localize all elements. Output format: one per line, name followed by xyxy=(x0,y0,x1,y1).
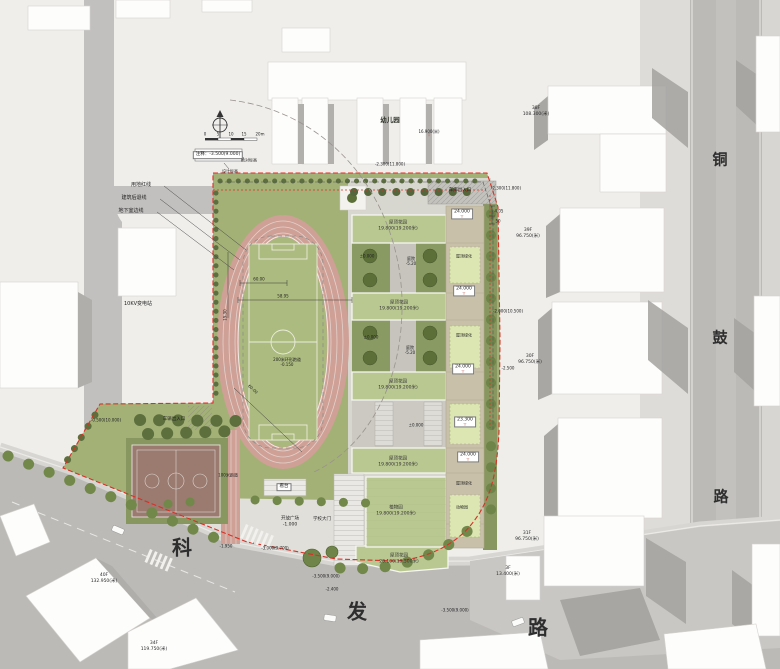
dim-50: 50 xyxy=(495,219,500,224)
label-basement-line: 地下室边线 xyxy=(118,208,143,214)
dim-4-05: 4.05 xyxy=(495,209,504,214)
street-tonggu-char-0: 铜 xyxy=(712,151,727,170)
scale-tick-1: 5 xyxy=(217,132,220,137)
green-roof-label-1: 屋顶绿化 xyxy=(456,333,472,338)
street-tonggu-char-2: 路 xyxy=(713,488,728,507)
plan-graphics xyxy=(0,0,780,669)
plaza-label: 开放广场-1.000 xyxy=(281,516,299,527)
tower-label-6: 34F119.750(米) xyxy=(141,641,168,653)
roof-label-5: 屋顶花园20.100(19.500米) xyxy=(379,553,419,564)
site-plan-drawing: 注释：-3.500(9.000) 绝对标高 设计标高 0 5 10 15 20m… xyxy=(0,0,780,669)
zero-elev-1: ±0.000 xyxy=(364,335,379,340)
scale-tick-0: 0 xyxy=(204,132,207,137)
label-garage-entrance: 车库出入口 xyxy=(449,188,472,194)
roof-label-1: 屋顶花园19.800(19.200米) xyxy=(379,300,419,311)
elev-east-b: -2.500 xyxy=(502,366,515,371)
tower-label-1: 39F96.750(米) xyxy=(516,228,540,240)
north-arrow xyxy=(212,110,228,138)
green-roof-label-3: 动物园 xyxy=(456,505,468,510)
substation-building xyxy=(118,228,176,296)
sprint-track-label: 100米跑道 xyxy=(218,473,238,478)
label-substation: 10KV变电站 xyxy=(124,301,152,307)
label-red-line: 用地红线 xyxy=(131,182,151,188)
elev-top-a: -2.300(11.800) xyxy=(375,162,405,167)
label-vehicle-entrance: 车辆出入口 xyxy=(163,417,186,423)
tower-label-3: 31F96.750(米) xyxy=(515,531,539,543)
roof-label-3: 屋顶花园19.800(19.200米) xyxy=(378,456,418,467)
dim-58-95: 58.95 xyxy=(277,294,288,299)
street-kefa-char-0: 科 xyxy=(172,536,192,561)
street-kefa-char-2: 路 xyxy=(528,616,548,641)
legend-design-elevation: 设计标高 xyxy=(222,169,238,174)
elev-west: -0.500(10.000) xyxy=(91,418,121,423)
elev-road-a: -1.950 xyxy=(220,544,233,549)
dim-15-30: 15.30 xyxy=(223,309,228,320)
roof-label-2: 屋顶花园19.800(19.200米) xyxy=(378,379,418,390)
legend-note: 注释：-3.500(9.000) xyxy=(193,151,243,159)
courtyard-label-1: 庭院-5.20 xyxy=(406,256,416,266)
street-kefa-char-1: 发 xyxy=(347,600,367,625)
scale-bar xyxy=(205,138,257,140)
tower-label-4: 3F13.400(米) xyxy=(496,566,520,578)
kindergarten-building xyxy=(268,62,466,164)
roof-label-0: 屋顶花园19.800(19.200米) xyxy=(378,220,418,231)
level-box-3: 23.300▽ xyxy=(454,416,476,427)
label-kindergarten: 幼儿园 xyxy=(380,116,400,124)
elev-top-b: -2.300(11.800) xyxy=(491,186,521,191)
level-box-2: 24.000▽ xyxy=(452,363,474,374)
tower-label-2: 30F96.750(米) xyxy=(518,354,542,366)
elev-road-c: -3.500(9.000) xyxy=(312,574,339,579)
soccer-field xyxy=(249,244,317,440)
elev-road-b: -3.000(9.700) xyxy=(261,546,288,551)
tower-label-5: 40F132.950(米) xyxy=(91,573,118,585)
label-kindergarten-height: 16.900(米)▽ xyxy=(418,129,439,138)
scale-tick-4: 20m xyxy=(256,132,265,137)
elev-east-a: -2.000(10.500) xyxy=(493,309,523,314)
dim-60-00-a: 60.00 xyxy=(253,277,264,282)
scale-tick-2: 10 xyxy=(228,132,233,137)
zero-elev-0: ±0.000 xyxy=(360,254,375,259)
basketball-court xyxy=(126,438,228,524)
level-box-0: 24.000▽ xyxy=(451,208,473,219)
green-roof-label-2: 屋顶绿化 xyxy=(456,481,472,486)
level-box-1: 24.000▽ xyxy=(453,285,475,296)
zero-elev-2: ±0.000 xyxy=(409,423,424,428)
green-roof-label-0: 屋顶绿化 xyxy=(456,254,472,259)
tower-label-0: 38F108.300(米) xyxy=(523,106,550,118)
street-tonggu-char-1: 鼓 xyxy=(712,329,727,348)
label-school-gate: 学校大门 xyxy=(313,517,331,523)
elev-road-e: -3.500(9.000) xyxy=(441,608,468,613)
track-label: 200米环形跑道-0.150 xyxy=(273,357,301,367)
roof-label-botanic: 植物园19.800(19.200米) xyxy=(376,505,416,516)
legend-absolute-elevation: 绝对标高 xyxy=(241,158,257,163)
level-box-4: 24.000▽ xyxy=(457,451,479,462)
elev-road-d: -2.400 xyxy=(326,587,339,592)
right-towers xyxy=(506,86,666,600)
courtyard-label-2: 庭院-5.20 xyxy=(405,345,415,355)
grandstand-label: 看台 xyxy=(277,483,292,491)
label-setback-line: 建筑后退线 xyxy=(121,195,146,201)
scale-tick-3: 15 xyxy=(241,132,246,137)
